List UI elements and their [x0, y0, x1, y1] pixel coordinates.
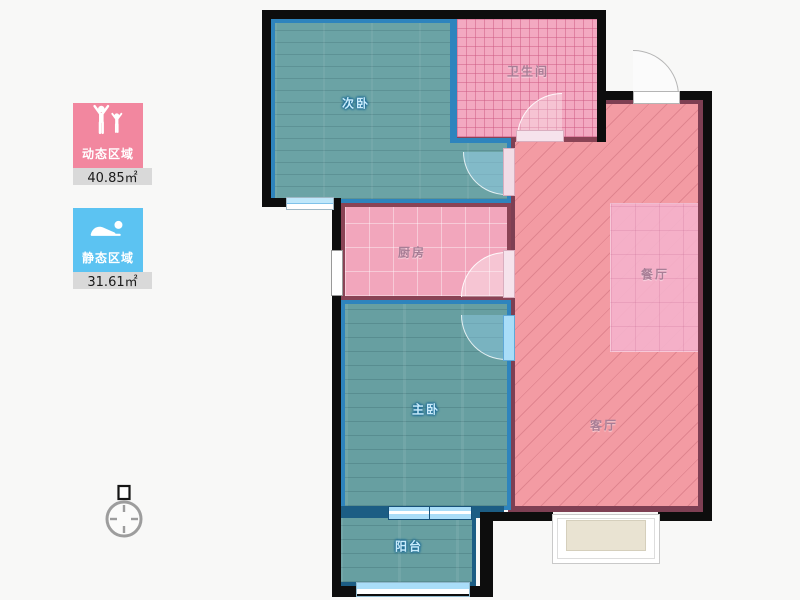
window	[331, 250, 343, 296]
window	[356, 582, 470, 597]
room-label-dining: 餐厅	[641, 266, 669, 283]
wall	[597, 91, 633, 100]
room-label-master-bedroom: 主卧	[412, 401, 440, 418]
floor-plan: 次卧 卫生间 厨房 餐厅 主卧 客厅 阳台	[0, 0, 800, 600]
bathroom-door-leaf	[516, 130, 564, 142]
room-label-bathroom: 卫生间	[507, 63, 549, 80]
wall	[450, 14, 457, 143]
balcony-sliding-door	[388, 506, 472, 520]
wall	[262, 10, 606, 19]
entry-door-arc	[633, 50, 679, 96]
wall	[483, 512, 553, 521]
entry-door-leaf	[633, 91, 680, 104]
master-bedroom-door-leaf	[503, 315, 515, 361]
second-bedroom-door-leaf	[503, 148, 515, 196]
room-label-living: 客厅	[590, 417, 618, 434]
bay-window	[552, 514, 660, 564]
wall	[597, 10, 606, 142]
wall	[262, 10, 271, 207]
wall	[703, 91, 712, 521]
wall	[450, 138, 513, 143]
wall	[658, 512, 712, 521]
room-label-kitchen: 厨房	[398, 244, 426, 261]
wall	[480, 512, 493, 597]
room-label-balcony: 阳台	[395, 538, 423, 555]
kitchen-door-leaf	[503, 250, 515, 298]
room-label-second-bedroom: 次卧	[342, 95, 370, 112]
window	[286, 197, 334, 210]
